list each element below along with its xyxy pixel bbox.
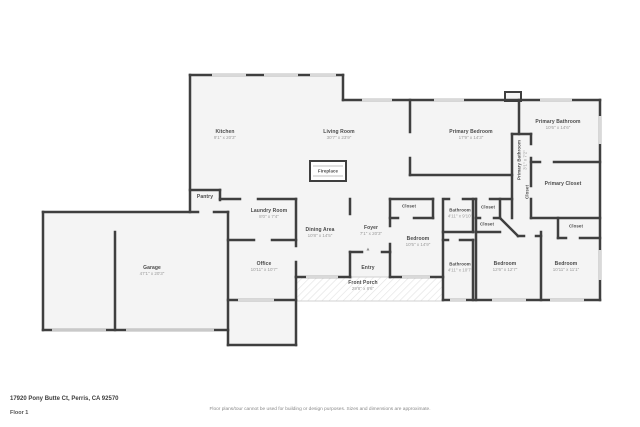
- room-floors: [43, 75, 600, 345]
- fireplace-symbol: [310, 161, 346, 181]
- entry-steps-icon: ▲: [366, 248, 371, 253]
- floorplan-drawing: [0, 0, 640, 427]
- disclaimer-text: Floor plans/tour cannot be used for buil…: [209, 407, 430, 412]
- property-address: 17920 Pony Butte Ct, Perris, CA 92570: [10, 396, 119, 402]
- floorplan-page: Kitchen 9'1" x 20'3" Living Room 30'7" x…: [0, 0, 640, 427]
- floor-label: Floor 1: [10, 410, 28, 416]
- front-porch-slab: [296, 277, 443, 301]
